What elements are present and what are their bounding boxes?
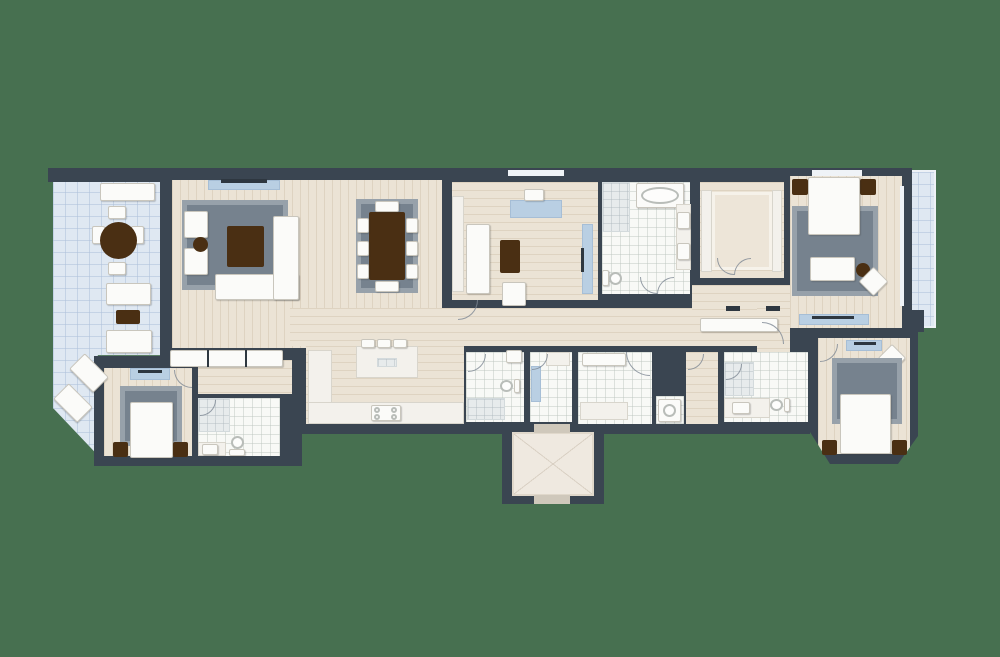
nightstand [173, 442, 188, 457]
shower [467, 398, 505, 420]
closet-wardrobe [772, 190, 782, 272]
burner [391, 407, 397, 413]
dining-chair [406, 264, 418, 279]
nightstand [822, 440, 837, 455]
sink [732, 402, 750, 414]
bar-stool [361, 339, 375, 348]
sofa-seat [273, 216, 299, 300]
outdoor-dining-table [100, 222, 137, 259]
nightstand [892, 440, 907, 455]
elevator-door-top [534, 424, 570, 433]
outdoor-chair [108, 206, 126, 219]
bedroom1-bed [130, 402, 173, 458]
outdoor-chair [108, 262, 126, 275]
bar-stool [377, 339, 391, 348]
dining-chair [406, 241, 418, 256]
corridor-door-track [726, 306, 740, 311]
nightstand [113, 442, 128, 457]
nightstand [860, 179, 876, 195]
side-table [193, 237, 208, 252]
bed-bench [810, 257, 855, 281]
nightstand [792, 179, 808, 195]
toilet-bowl [231, 436, 244, 449]
foyer-cabinet [580, 402, 628, 420]
elevator-door-bottom [534, 495, 570, 504]
dining-chair [375, 201, 399, 212]
hall-closet-divider [207, 350, 209, 367]
window-study-top [508, 170, 564, 176]
dining-chair [357, 241, 369, 256]
master-tv [812, 316, 854, 319]
sink [677, 212, 690, 229]
study-desk [510, 200, 562, 218]
study-tv [581, 248, 584, 272]
bedroom2-bed [840, 394, 891, 454]
utility-shelf [546, 352, 570, 366]
bedroom2-tv [854, 342, 876, 345]
toilet-bowl [609, 272, 622, 285]
armchair [184, 248, 208, 275]
dining-chair [375, 281, 399, 292]
washer-drum [663, 404, 676, 417]
bedroom1-tv [138, 370, 162, 373]
burner [374, 407, 380, 413]
toilet-tank [602, 270, 609, 286]
closet-wardrobe [701, 190, 712, 272]
burner [391, 414, 397, 420]
outdoor-sofa [100, 183, 155, 201]
dining-chair [357, 264, 369, 279]
island-sink [377, 358, 397, 367]
armchair [184, 211, 208, 238]
wall-terrace-top [48, 168, 164, 182]
burner [374, 414, 380, 420]
foyer-bench [582, 353, 626, 366]
bar-stool [393, 339, 407, 348]
study-shelving [452, 196, 464, 292]
window-master-top [812, 170, 862, 176]
elevator-shaft [512, 432, 594, 496]
toilet-tank [514, 379, 520, 393]
floor-plan-canvas [0, 0, 1000, 657]
bathtub-basin [641, 187, 679, 204]
outdoor-lounger [106, 283, 151, 305]
sink [202, 444, 218, 455]
corridor-door-track [766, 306, 780, 311]
shower [602, 182, 630, 232]
study-table [500, 240, 520, 273]
utility-cabinet [531, 366, 541, 402]
master-bed [808, 177, 860, 235]
toilet-tank [229, 449, 245, 456]
dining-chair [357, 218, 369, 233]
coffee-table [227, 226, 264, 267]
toilet-tank [784, 398, 790, 412]
study-chair [524, 189, 544, 201]
toilet-bowl [770, 399, 783, 411]
hall-closet-divider [245, 350, 247, 367]
outdoor-side-table [116, 310, 140, 324]
living-tv [221, 179, 267, 183]
sink [677, 243, 690, 260]
dining-table [369, 212, 405, 280]
study-wardrobe [466, 224, 490, 294]
study-armchair [502, 282, 526, 306]
window-master-terrace-glass [900, 186, 904, 306]
sink [506, 350, 522, 363]
hall-closet-strip [170, 350, 283, 367]
dining-chair [406, 218, 418, 233]
outdoor-lounger [106, 330, 152, 353]
toilet-bowl [500, 380, 513, 392]
